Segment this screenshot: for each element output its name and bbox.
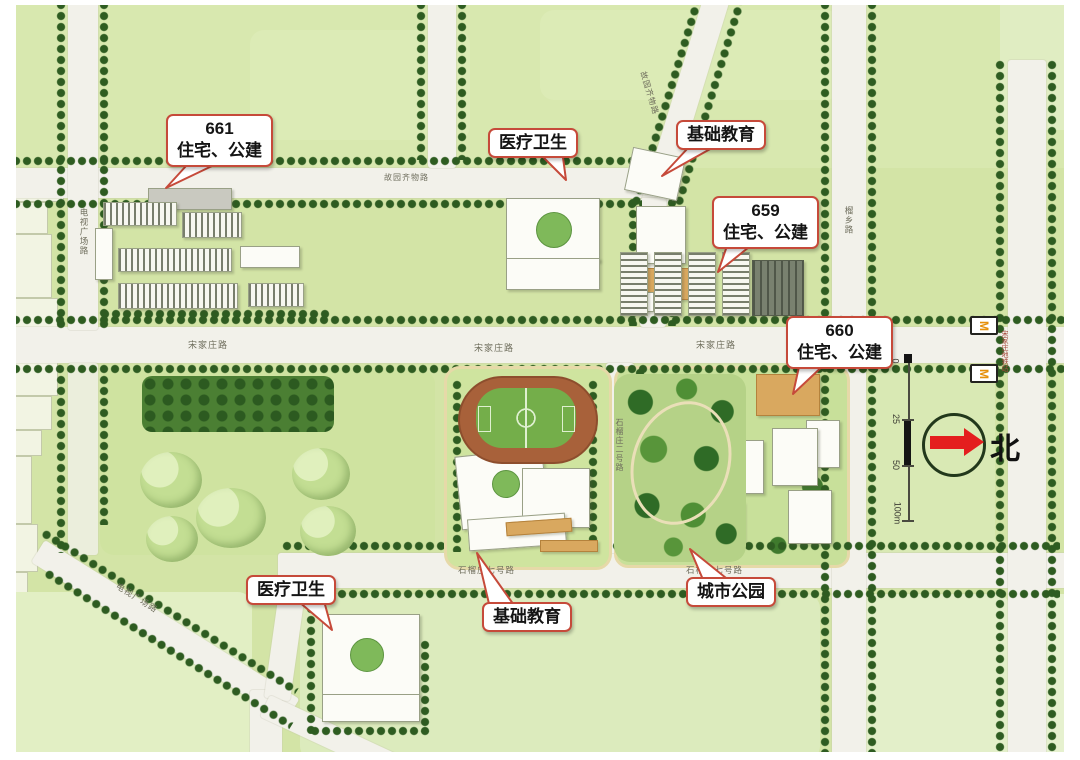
callout-label: 基础教育	[493, 606, 561, 628]
callout-type: 住宅、公建	[797, 342, 882, 364]
planning-map: 宋家庄路 宋家庄路 宋家庄路 故园齐物路 故园齐物路 电视广场路 电视广场路 石…	[0, 0, 1080, 760]
callout-659: 659 住宅、公建	[712, 196, 819, 249]
scalebar-segment	[904, 420, 911, 466]
north-arrow-icon	[964, 428, 984, 456]
callout-label: 基础教育	[687, 124, 755, 146]
scalebar-tick	[902, 465, 914, 467]
callout-label: 医疗卫生	[257, 579, 325, 601]
callout-number: 660	[797, 320, 882, 342]
callout-education-bottom: 基础教育	[482, 602, 572, 632]
frame-edge	[0, 752, 1080, 760]
scalebar-label: 50	[891, 460, 901, 470]
callout-city-park: 城市公园	[686, 577, 776, 607]
callout-label: 城市公园	[697, 581, 765, 603]
callout-medical-top: 医疗卫生	[488, 128, 578, 158]
callout-661: 661 住宅、公建	[166, 114, 273, 167]
callout-number: 659	[723, 200, 808, 222]
frame-edge	[0, 0, 16, 760]
scalebar-segment	[904, 354, 912, 363]
frame-edge	[1064, 0, 1080, 760]
scalebar-tick	[902, 520, 914, 522]
north-label: 北	[990, 424, 1020, 468]
callout-type: 住宅、公建	[723, 222, 808, 244]
screenshot: 宋家庄路 宋家庄路 宋家庄路 故园齐物路 故园齐物路 电视广场路 电视广场路 石…	[0, 0, 1080, 760]
callout-tails	[0, 0, 1080, 760]
scalebar-label: 25	[891, 414, 901, 424]
callout-type: 住宅、公建	[177, 140, 262, 162]
scalebar-label: 100m	[892, 502, 902, 525]
callout-660: 660 住宅、公建	[786, 316, 893, 369]
frame-edge	[0, 0, 1080, 5]
north-arrow-icon	[930, 436, 964, 449]
callout-education-top: 基础教育	[676, 120, 766, 150]
callout-medical-bottom: 医疗卫生	[246, 575, 336, 605]
callout-number: 661	[177, 118, 262, 140]
scalebar-label: 0	[891, 358, 901, 363]
scalebar-tick	[902, 419, 914, 421]
callout-label: 医疗卫生	[499, 132, 567, 154]
